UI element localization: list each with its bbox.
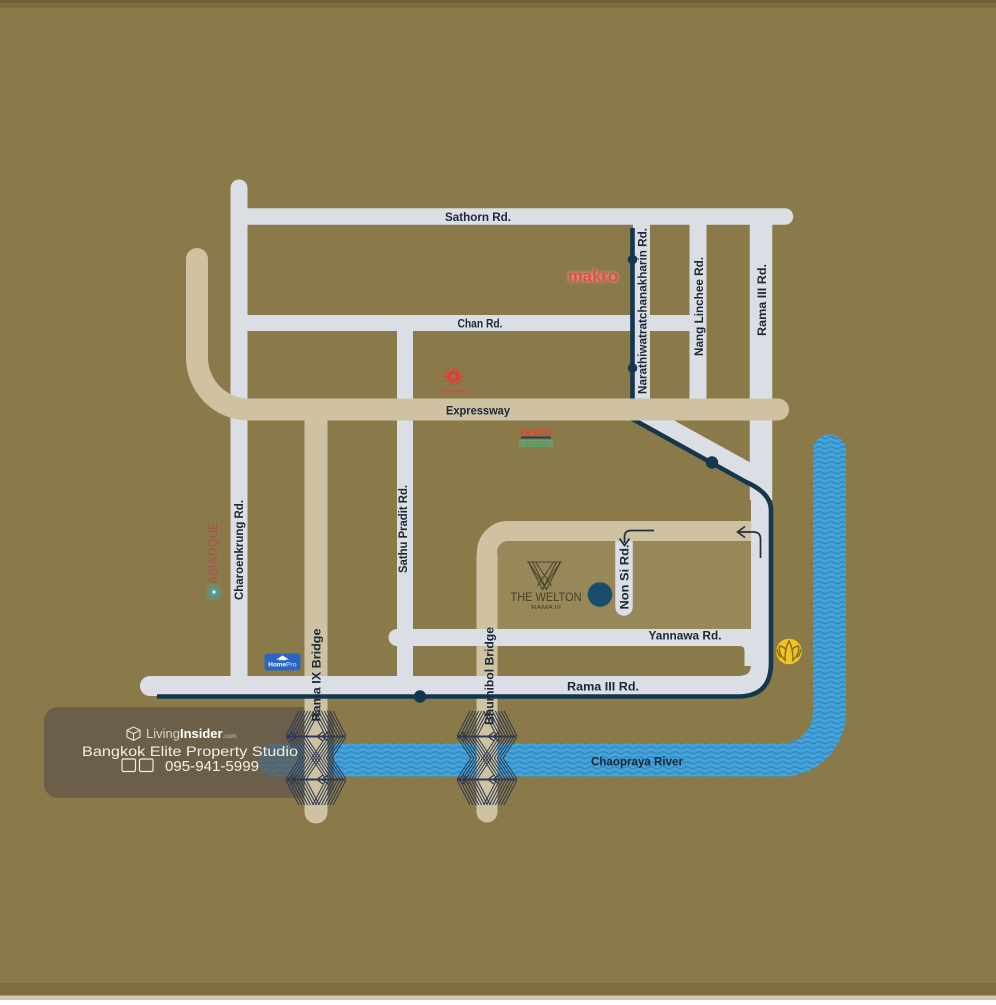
svg-text:TESCO: TESCO	[519, 429, 552, 438]
svg-text:Sathu Pradit Rd.: Sathu Pradit Rd.	[396, 485, 410, 573]
svg-text:Bangkok Elite Property Studio: Bangkok Elite Property Studio	[82, 744, 298, 759]
svg-text:Yannawa Rd.: Yannawa Rd.	[649, 629, 722, 643]
svg-text:RAMA III: RAMA III	[531, 605, 562, 611]
svg-text:Sathorn Rd.: Sathorn Rd.	[445, 210, 511, 224]
svg-text:ASIATIQUE: ASIATIQUE	[208, 522, 220, 584]
svg-text:Bhumibol Bridge: Bhumibol Bridge	[483, 627, 497, 725]
svg-text:makro: makro	[568, 267, 618, 286]
svg-text:Nang Linchee Rd.: Nang Linchee Rd.	[692, 257, 706, 356]
svg-text:Charoenkrung Rd.: Charoenkrung Rd.	[232, 500, 246, 600]
svg-text:Narathiwatratchanakharin Rd.: Narathiwatratchanakharin Rd.	[636, 228, 650, 394]
svg-text:Rama IX Bridge: Rama IX Bridge	[310, 628, 324, 721]
svg-text:Lotus: Lotus	[526, 440, 546, 449]
svg-text:CentralPlaza: CentralPlaza	[440, 389, 468, 394]
svg-text:Non Si Rd.: Non Si Rd.	[618, 545, 632, 610]
svg-text:THE WELTON: THE WELTON	[511, 590, 582, 604]
svg-text:Rama III Rd.: Rama III Rd.	[567, 680, 639, 694]
svg-text:HomePro: HomePro	[268, 662, 297, 669]
svg-text:Rama III Rd.: Rama III Rd.	[755, 264, 769, 336]
svg-text:095-941-5999: 095-941-5999	[165, 758, 259, 775]
svg-text:Expressway: Expressway	[446, 404, 510, 418]
svg-text:Chaopraya River: Chaopraya River	[591, 755, 683, 769]
svg-text:Chan Rd.: Chan Rd.	[458, 317, 503, 331]
